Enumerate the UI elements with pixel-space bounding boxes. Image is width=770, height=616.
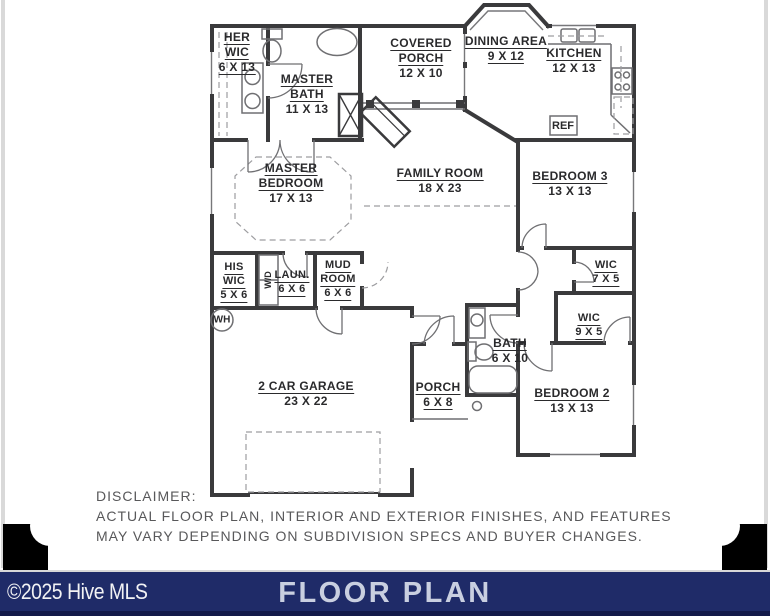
master-tub-icon <box>317 29 357 56</box>
page-edge-left <box>1 0 5 568</box>
room-label-porch: PORCH 6 X 8 <box>416 380 461 410</box>
footer-bar: ©2025 Hive MLS FLOOR PLAN <box>0 570 770 616</box>
pantry-dashed <box>614 97 633 134</box>
room-label-dining-area: DINING AREA 9 X 12 <box>465 34 547 64</box>
room-label-covered-porch: COVERED PORCH 12 X 10 <box>390 36 451 80</box>
disclaimer: DISCLAIMER: ACTUAL FLOOR PLAN, INTERIOR … <box>96 486 716 546</box>
disclaimer-title: DISCLAIMER: <box>96 486 716 506</box>
bath-toilet-icon <box>468 342 493 361</box>
disclaimer-line-2: MAY VARY DEPENDING ON SUBDIVISION SPECS … <box>96 526 716 546</box>
floor-plan-drawing <box>0 0 770 570</box>
room-label-garage: 2 CAR GARAGE 23 X 22 <box>258 379 354 408</box>
page-edge-right <box>764 0 768 568</box>
room-label-his-wic: HIS WIC 5 X 6 <box>220 261 247 303</box>
refrigerator-label: REF <box>552 120 574 132</box>
room-label-bath: BATH 6 X 10 <box>492 336 529 365</box>
room-label-master-bedroom: MASTER BEDROOM 17 X 13 <box>259 161 324 205</box>
room-label-laundry: LAUN. 6 X 6 <box>274 269 309 297</box>
room-label-kitchen: KITCHEN 12 X 13 <box>546 46 601 75</box>
disclaimer-line-1: ACTUAL FLOOR PLAN, INTERIOR AND EXTERIOR… <box>96 506 716 526</box>
room-label-bedroom-2: BEDROOM 2 13 X 13 <box>534 386 609 415</box>
room-label-mud-room: MUD ROOM 6 X 6 <box>320 259 355 301</box>
garage-door-dashed <box>246 432 380 492</box>
porch-post-circle <box>473 402 482 411</box>
washer-dryer-label: W/D <box>263 271 273 289</box>
floor-plan: HER WIC 6 X 13 MASTER BATH 11 X 13 COVER… <box>0 0 770 570</box>
cooktop-icon <box>612 68 632 94</box>
bath-vanity-icon <box>469 308 485 338</box>
mls-floor-plan-image: { "rooms": { "her_wic": {"l1": "HER", "l… <box>0 0 770 616</box>
master-toilet-icon <box>262 29 282 62</box>
bath-tub-icon <box>469 366 517 393</box>
fixtures <box>211 29 632 420</box>
water-heater-label: WH <box>214 315 231 326</box>
mud-opening-arc <box>362 262 388 288</box>
room-label-master-bath: MASTER BATH 11 X 13 <box>281 72 333 116</box>
room-label-bedroom-3: BEDROOM 3 13 X 13 <box>532 169 607 198</box>
footer-title: FLOOR PLAN <box>0 577 770 610</box>
room-label-wic-7x5: WIC 7 X 5 <box>592 259 619 287</box>
room-label-family-room: FAMILY ROOM 18 X 23 <box>397 166 484 195</box>
room-label-wic-9x5: WIC 9 X 5 <box>575 312 602 340</box>
room-label-her-wic: HER WIC 6 X 13 <box>219 30 256 75</box>
